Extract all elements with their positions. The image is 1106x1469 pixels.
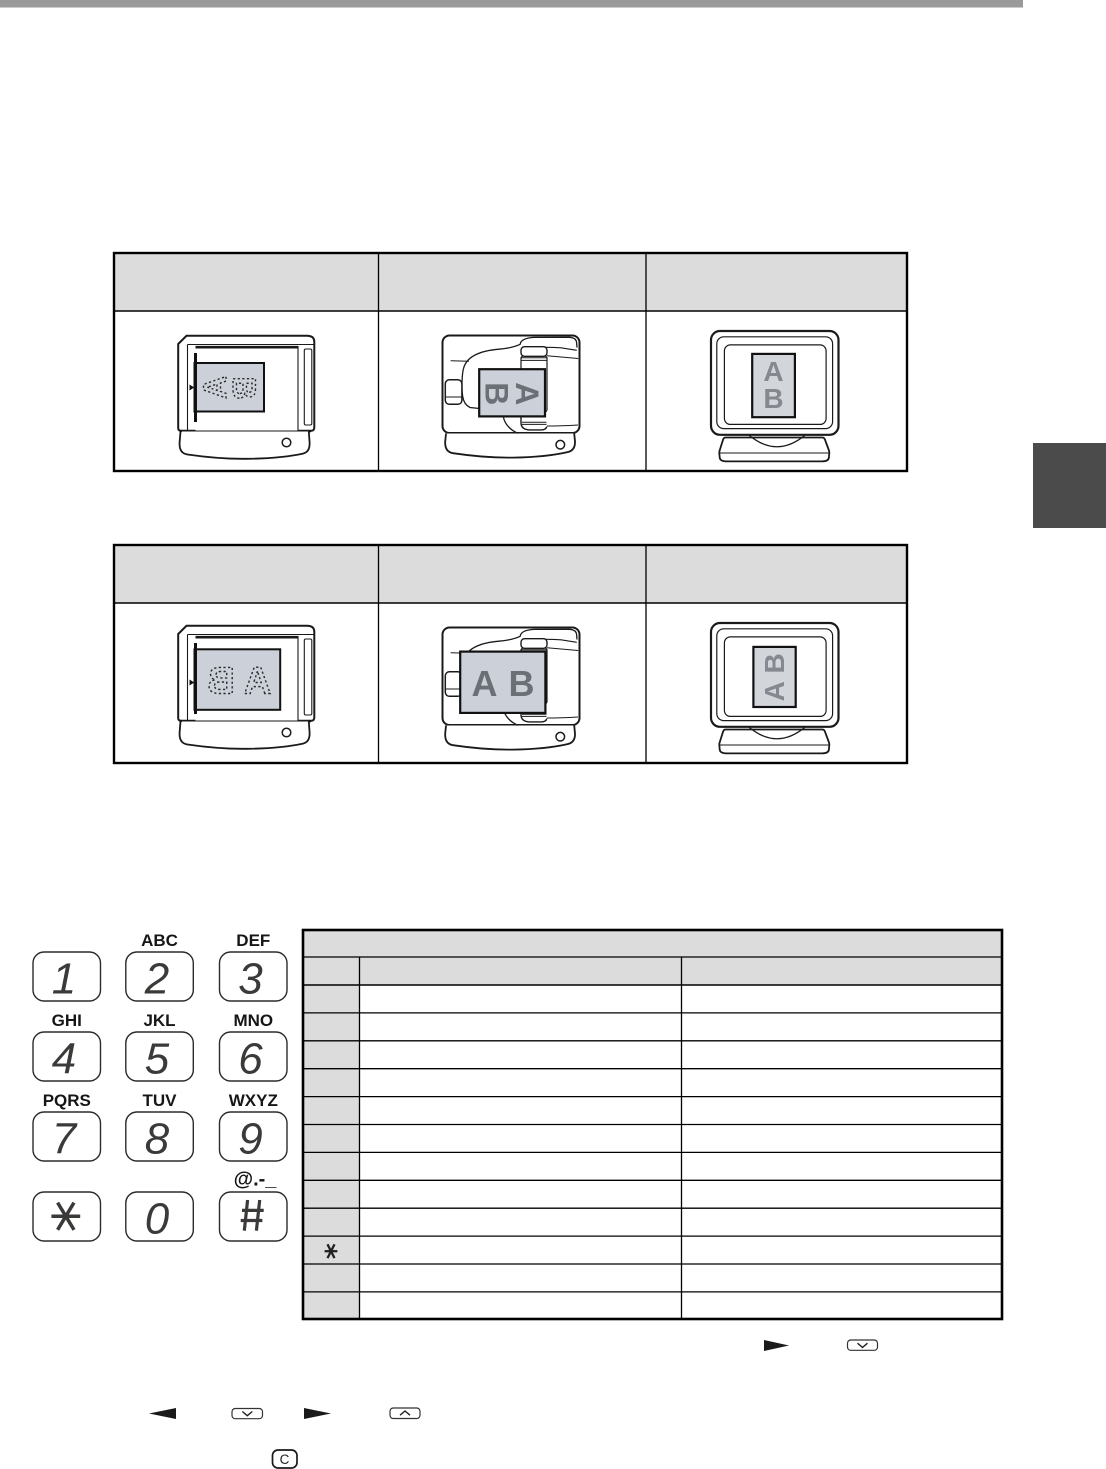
- svg-text:A: A: [759, 681, 790, 701]
- svg-text:0: 0: [145, 1195, 170, 1244]
- svg-text:B: B: [763, 383, 783, 414]
- svg-text:A: A: [472, 663, 498, 704]
- svg-text:2: 2: [144, 955, 169, 1004]
- svg-text:9: 9: [238, 1115, 262, 1164]
- svg-text:WXYZ: WXYZ: [229, 1091, 278, 1110]
- svg-text:B: B: [759, 653, 790, 673]
- svg-text:MNO: MNO: [233, 1011, 273, 1030]
- svg-text:8: 8: [145, 1115, 170, 1164]
- svg-text:1: 1: [52, 955, 76, 1004]
- svg-text:3: 3: [238, 955, 263, 1004]
- svg-text:JKL: JKL: [143, 1011, 175, 1030]
- svg-text:GHI: GHI: [52, 1011, 82, 1030]
- svg-text:4: 4: [52, 1035, 76, 1084]
- svg-text:C: C: [280, 1452, 290, 1467]
- svg-text:ABC: ABC: [141, 931, 178, 950]
- svg-text:PQRS: PQRS: [43, 1091, 91, 1110]
- svg-text:B: B: [207, 661, 234, 703]
- svg-text:B: B: [509, 663, 535, 704]
- svg-text:B: B: [478, 382, 514, 405]
- svg-text:5: 5: [145, 1035, 170, 1084]
- svg-text:7: 7: [52, 1115, 78, 1164]
- svg-text:6: 6: [238, 1035, 263, 1084]
- svg-text:DEF: DEF: [236, 931, 270, 950]
- svg-text:@.-_: @.-_: [234, 1169, 278, 1191]
- svg-text:B: B: [226, 376, 262, 399]
- svg-text:TUV: TUV: [143, 1091, 178, 1110]
- svg-text:A: A: [244, 661, 271, 703]
